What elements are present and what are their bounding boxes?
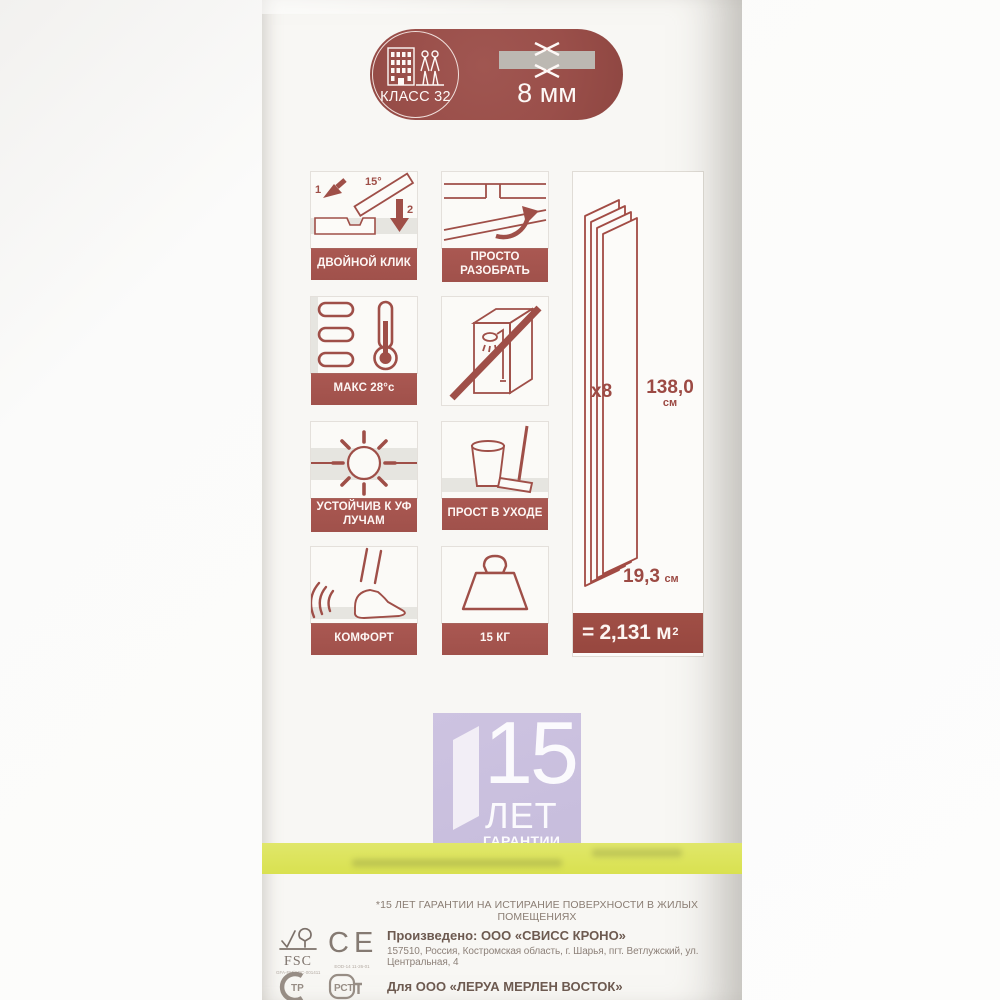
feature-label: ПРОСТО РАЗОБРАТЬ bbox=[442, 248, 548, 282]
fire-safety-cert-icon: ТР bbox=[278, 972, 312, 1000]
show-through-smudge bbox=[592, 849, 682, 857]
plank-count: x8 bbox=[591, 381, 612, 403]
max-load-icon bbox=[442, 547, 548, 623]
class-thickness-pill: КЛАСС 32 8 мм bbox=[370, 29, 623, 120]
feature-label: КОМФОРТ bbox=[311, 623, 417, 655]
warranty-years: 15 bbox=[484, 709, 576, 797]
uv-resistant-icon bbox=[311, 422, 417, 498]
plank-width-value: 19,3 bbox=[623, 566, 660, 587]
fsc-logo: FSC GFA-FM/COC-001411 bbox=[276, 925, 320, 975]
pack-area-value: = 2,131 м bbox=[582, 621, 671, 645]
easy-care-icon bbox=[442, 422, 548, 498]
building-people-icon bbox=[385, 45, 447, 87]
feature-tile-uv: УСТОЙЧИВ К УФ ЛУЧАМ bbox=[311, 422, 417, 532]
feature-tile-max-load: 15 КГ bbox=[442, 547, 548, 655]
package-back-panel: КЛАСС 32 8 мм bbox=[262, 0, 742, 1000]
usage-class-label: КЛАСС 32 bbox=[380, 89, 451, 105]
feature-label: 15 КГ bbox=[442, 623, 548, 655]
svg-text:ТР: ТР bbox=[291, 983, 304, 994]
yellow-accent-band bbox=[262, 843, 742, 874]
svg-text:1: 1 bbox=[315, 184, 321, 196]
packaging-photo: КЛАСС 32 8 мм bbox=[0, 0, 1000, 1000]
warranty-footnote: *15 ЛЕТ ГАРАНТИИ НА ИСТИРАНИЕ ПОВЕРХНОСТ… bbox=[342, 899, 732, 923]
pack-area-banner: = 2,131 м2 bbox=[573, 613, 703, 653]
plank-length-unit: см bbox=[641, 397, 699, 409]
plank-width-unit: см bbox=[664, 573, 678, 585]
fsc-label: FSC bbox=[276, 954, 320, 970]
feature-tile-double-click: 1 15° 2 ДВОЙНОЙ КЛИК bbox=[311, 172, 417, 280]
pack-area-sup: 2 bbox=[672, 626, 678, 638]
underfloor-heating-icon bbox=[311, 297, 417, 373]
manufacturer-address: 157510, Россия, Костромская область, г. … bbox=[387, 946, 742, 968]
double-click-icon: 1 15° 2 bbox=[311, 172, 417, 248]
feature-label: ПРОСТ В УХОДЕ bbox=[442, 498, 548, 530]
feature-label: МАКС 28°c bbox=[311, 373, 417, 405]
easy-disassemble-icon bbox=[442, 172, 548, 248]
thickness-icon bbox=[495, 42, 599, 78]
plank-width: 19,3 см bbox=[623, 566, 679, 588]
rostest-cert-icon: РСТ bbox=[328, 972, 364, 1000]
fsc-tree-icon bbox=[278, 925, 318, 951]
warranty-badge: 15 ЛЕТ ГАРАНТИИ bbox=[433, 713, 581, 854]
no-wet-rooms-icon bbox=[442, 297, 548, 405]
svg-text:15°: 15° bbox=[365, 176, 382, 188]
svg-text:2: 2 bbox=[407, 204, 413, 216]
feature-tile-comfort: КОМФОРТ bbox=[311, 547, 417, 655]
feature-tile-heating: МАКС 28°c bbox=[311, 297, 417, 405]
show-through-smudge bbox=[352, 859, 562, 867]
feature-tile-easy-care: ПРОСТ В УХОДЕ bbox=[442, 422, 548, 530]
comfort-icon bbox=[311, 547, 417, 623]
warranty-unit: ЛЕТ bbox=[485, 795, 558, 837]
ce-mark: CE EOD-14 11-26-01 bbox=[328, 929, 376, 969]
plank-length: 138,0 см bbox=[641, 378, 699, 409]
feature-label: ДВОЙНОЙ КЛИК bbox=[311, 248, 417, 280]
ce-label: CE bbox=[328, 929, 376, 958]
feature-label: УСТОЙЧИВ К УФ ЛУЧАМ bbox=[311, 498, 417, 532]
plank-length-value: 138,0 bbox=[641, 378, 699, 397]
pack-contents-panel: x8 138,0 см 19,3 см = 2,131 м2 bbox=[573, 172, 703, 656]
feature-tile-no-wet-rooms bbox=[442, 297, 548, 405]
feature-tile-disassemble: ПРОСТО РАЗОБРАТЬ bbox=[442, 172, 548, 282]
manufacturer-title: Произведено: ООО «СВИСС КРОНО» bbox=[387, 928, 626, 943]
distributor-line: Для ООО «ЛЕРУА МЕРЛЕН ВОСТОК» bbox=[387, 979, 623, 994]
svg-text:РСТ: РСТ bbox=[334, 983, 354, 994]
usage-class-badge: КЛАСС 32 bbox=[372, 31, 459, 118]
thickness-value: 8 мм bbox=[517, 80, 577, 107]
ce-code: EOD-14 11-26-01 bbox=[328, 964, 376, 969]
